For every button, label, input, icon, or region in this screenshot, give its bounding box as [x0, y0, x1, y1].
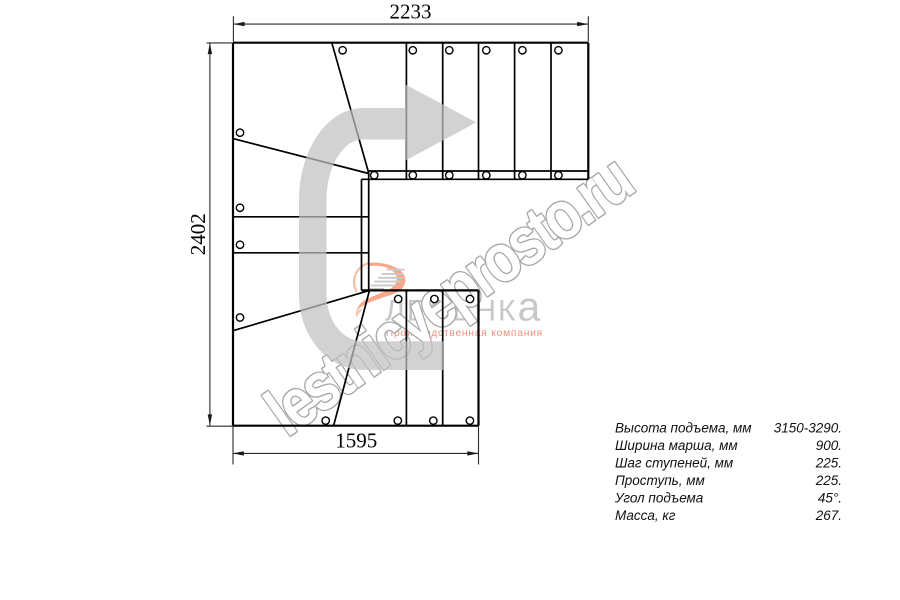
svg-text:3150-3290.: 3150-3290.	[774, 420, 842, 435]
svg-text:Масса, кг: Масса, кг	[615, 508, 676, 523]
svg-text:2233: 2233	[390, 0, 432, 24]
svg-text:Ширина марша, мм: Ширина марша, мм	[615, 438, 738, 453]
svg-text:900.: 900.	[816, 438, 842, 453]
svg-text:225.: 225.	[815, 473, 842, 488]
svg-text:Шаг ступеней, мм: Шаг ступеней, мм	[615, 455, 733, 470]
svg-text:Угол подъема: Угол подъема	[614, 490, 704, 505]
svg-text:1595: 1595	[335, 429, 377, 453]
svg-text:225.: 225.	[815, 455, 842, 470]
svg-text:267.: 267.	[815, 508, 842, 523]
svg-text:Проступь, мм: Проступь, мм	[615, 473, 705, 488]
svg-text:45°.: 45°.	[818, 490, 842, 505]
svg-text:2402: 2402	[186, 213, 210, 255]
svg-text:Высота подъема, мм: Высота подъема, мм	[615, 420, 751, 435]
